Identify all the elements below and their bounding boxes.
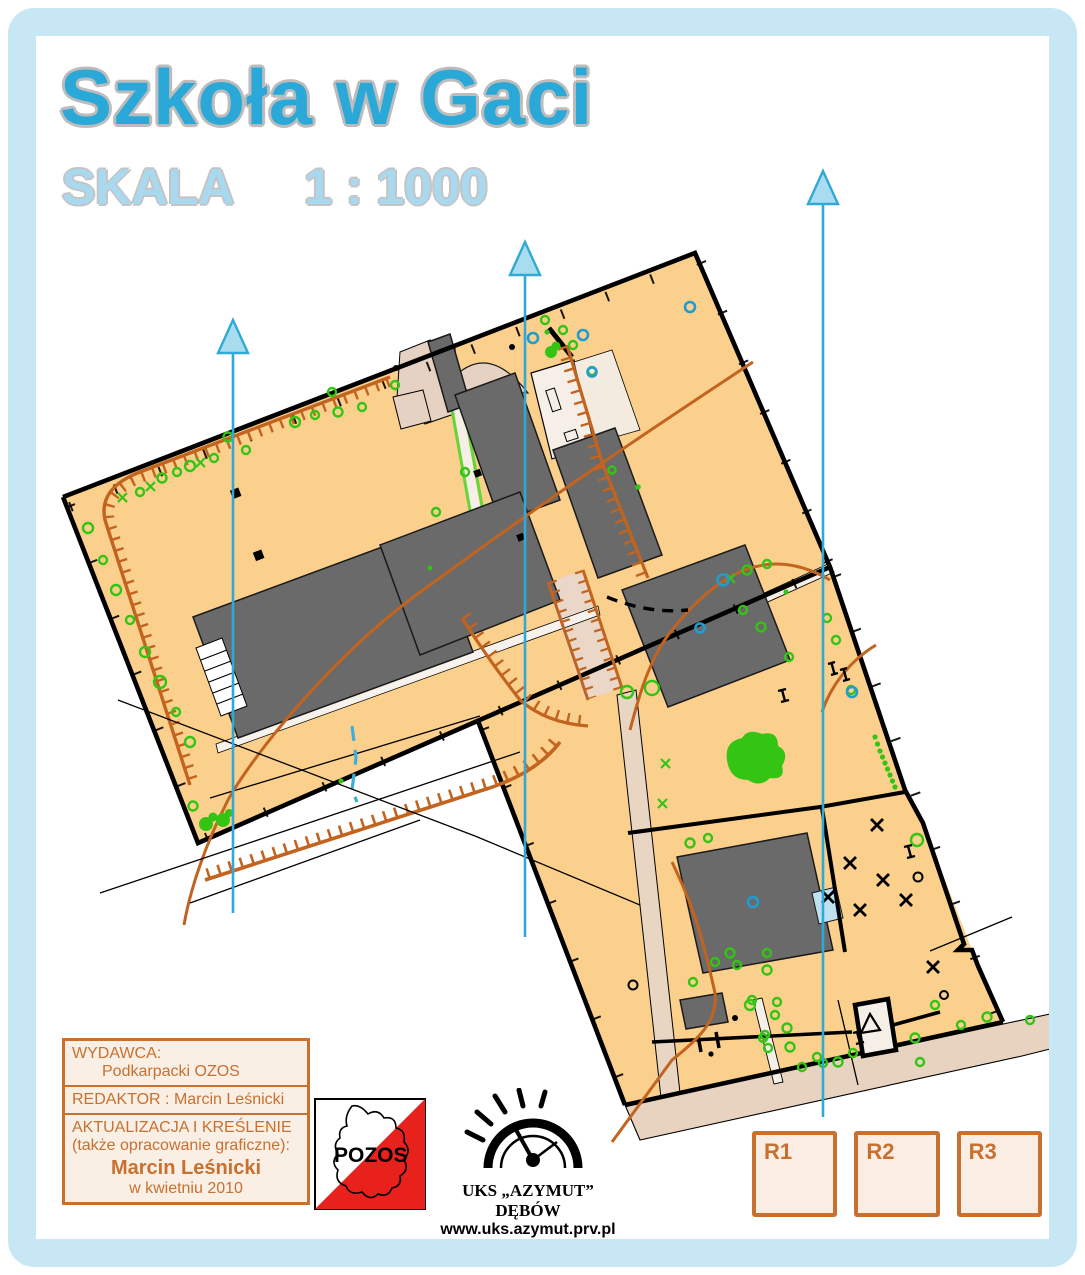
reserve-box-r1: R1 xyxy=(752,1131,837,1217)
pozos-logo: POZOS xyxy=(314,1098,426,1210)
publisher-row: WYDAWCA: Podkarpacki OZOS xyxy=(65,1041,307,1085)
map-title: Szkoła w Gaci xyxy=(60,52,593,143)
shelter xyxy=(855,999,896,1056)
azymut-logo: UKS „AZYMUT” DĘBÓW www.uks.azymut.prv.pl xyxy=(428,1088,628,1224)
reserve-box-r2: R2 xyxy=(854,1131,939,1217)
north-arrow-3 xyxy=(808,171,838,204)
reserve-box-label: R3 xyxy=(969,1139,997,1164)
azymut-url: www.uks.azymut.prv.pl xyxy=(428,1221,628,1239)
update-row: AKTUALIZACJA I KREŚLENIE (także opracowa… xyxy=(65,1113,307,1202)
reserve-box-r3: R3 xyxy=(957,1131,1042,1217)
azymut-compass-icon xyxy=(453,1088,603,1174)
editor-row: REDAKTOR : Marcin Leśnicki xyxy=(65,1085,307,1113)
credits-box: WYDAWCA: Podkarpacki OZOS REDAKTOR : Mar… xyxy=(62,1038,310,1205)
pozos-text: POZOS xyxy=(334,1144,408,1167)
scale-value: 1 : 1000 xyxy=(304,159,487,215)
author-name: Marcin Leśnicki xyxy=(72,1157,300,1180)
scale-label: SKALA xyxy=(62,159,234,215)
update-date: w kwietniu 2010 xyxy=(72,1180,300,1198)
update-line2: (także opracowanie graficzne): xyxy=(72,1137,300,1155)
building-se-house xyxy=(677,833,833,973)
building-small-house xyxy=(680,993,728,1029)
north-arrow-1 xyxy=(218,320,248,353)
map-poster-page: { "page": { "background": "#ffffff", "fr… xyxy=(0,0,1085,1275)
azymut-club-name: UKS „AZYMUT” DĘBÓW xyxy=(428,1181,628,1221)
editor-name: REDAKTOR : Marcin Leśnicki xyxy=(72,1091,300,1109)
update-line1: AKTUALIZACJA I KREŚLENIE xyxy=(72,1119,300,1137)
publisher-label: WYDAWCA: xyxy=(72,1045,300,1063)
reserve-boxes: R1 R2 R3 xyxy=(752,1131,1042,1217)
publisher-name: Podkarpacki OZOS xyxy=(72,1063,300,1081)
north-arrow-2 xyxy=(510,242,540,275)
map-scale: SKALA1 : 1000 xyxy=(62,158,488,216)
reserve-box-label: R2 xyxy=(866,1139,894,1164)
reserve-box-label: R1 xyxy=(764,1139,792,1164)
pozos-flag-icon: POZOS xyxy=(314,1098,426,1210)
